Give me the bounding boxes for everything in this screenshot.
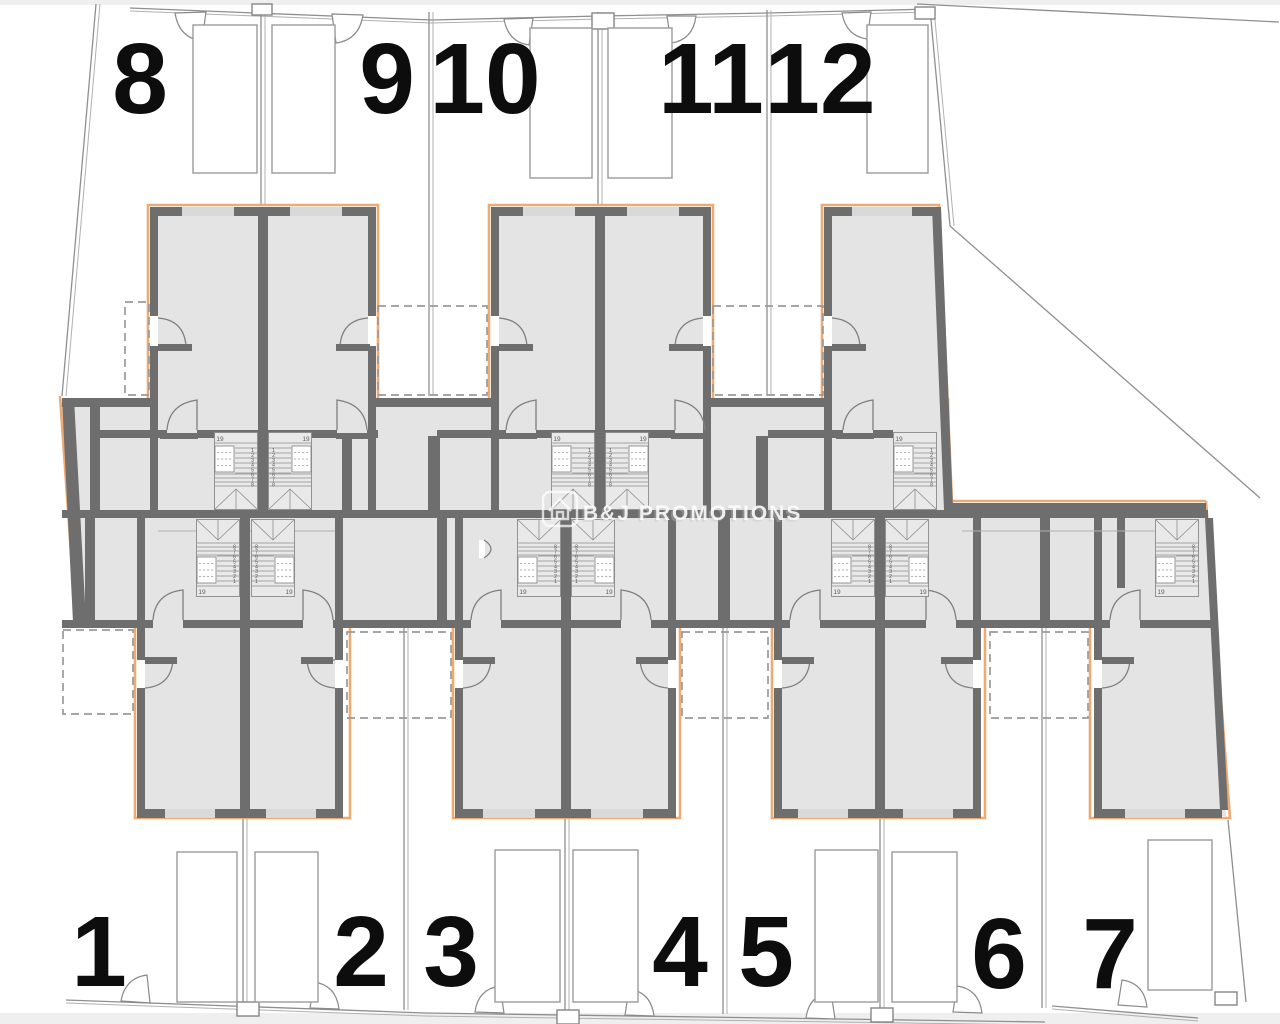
svg-text:8: 8 [272, 482, 275, 488]
plot-number-11: 11 [658, 23, 764, 135]
parking-bay [495, 850, 560, 1002]
parking-bay [255, 852, 318, 1002]
plot-number-7: 7 [1082, 898, 1138, 1010]
parking-bay [1148, 840, 1212, 990]
svg-text:8: 8 [233, 545, 236, 551]
staircase: 1912345678 [831, 520, 875, 597]
svg-text:8: 8 [251, 482, 254, 488]
plot-number-5: 5 [738, 896, 794, 1008]
staircase: 1912345678 [571, 520, 615, 597]
svg-text:8: 8 [255, 545, 258, 551]
staircase: 1912345678 [268, 433, 312, 510]
svg-text:8: 8 [930, 482, 933, 488]
parking-bay [815, 850, 878, 1002]
plot-number-4: 4 [652, 896, 708, 1008]
plot-number-1: 1 [71, 896, 127, 1008]
top-edge-strip [0, 0, 1280, 5]
parking-bay [177, 852, 237, 1002]
svg-text:8: 8 [554, 545, 557, 551]
staircase: 1912345678 [551, 433, 595, 510]
svg-text:19: 19 [216, 436, 224, 443]
svg-text:19: 19 [1157, 589, 1165, 596]
parking-bay [272, 25, 335, 173]
site-plan-page: 1912345678191234567819123456781912345678… [0, 0, 1280, 1024]
parking-bay [892, 852, 957, 1002]
parking-bay [573, 850, 638, 1002]
plot-number-9: 9 [359, 23, 415, 135]
parking-bay [867, 25, 928, 173]
plot-number-10: 10 [429, 23, 540, 135]
plot-number-12: 12 [764, 23, 875, 135]
svg-text:19: 19 [285, 589, 293, 596]
watermark-text: B&J PROMOTIONS [583, 502, 802, 525]
staircase: 1912345678 [893, 433, 937, 510]
staircase: 1912345678 [885, 520, 929, 597]
svg-text:19: 19 [895, 436, 903, 443]
svg-text:8: 8 [868, 545, 871, 551]
svg-text:8: 8 [1192, 545, 1195, 551]
staircase: 1912345678 [214, 433, 258, 510]
svg-text:19: 19 [833, 589, 841, 596]
staircase: 1912345678 [517, 520, 561, 597]
plot-number-8: 8 [112, 23, 168, 135]
plot-number-2: 2 [333, 896, 389, 1008]
plot-number-3: 3 [423, 896, 479, 1008]
svg-text:19: 19 [639, 436, 647, 443]
svg-text:19: 19 [919, 589, 927, 596]
svg-text:19: 19 [519, 589, 527, 596]
staircase: 1912345678 [251, 520, 295, 597]
svg-text:8: 8 [889, 545, 892, 551]
staircase: 1912345678 [1155, 520, 1199, 597]
floor-plan-drawing: 1912345678191234567819123456781912345678… [0, 0, 1280, 1024]
svg-text:8: 8 [575, 545, 578, 551]
staircase: 1912345678 [196, 520, 240, 597]
svg-text:19: 19 [302, 436, 310, 443]
svg-text:19: 19 [198, 589, 206, 596]
staircase: 1912345678 [605, 433, 649, 510]
parking-bay [193, 25, 257, 173]
plot-number-6: 6 [971, 898, 1027, 1010]
svg-text:19: 19 [553, 436, 561, 443]
svg-text:8: 8 [609, 482, 612, 488]
svg-text:19: 19 [605, 589, 613, 596]
svg-text:8: 8 [588, 482, 591, 488]
